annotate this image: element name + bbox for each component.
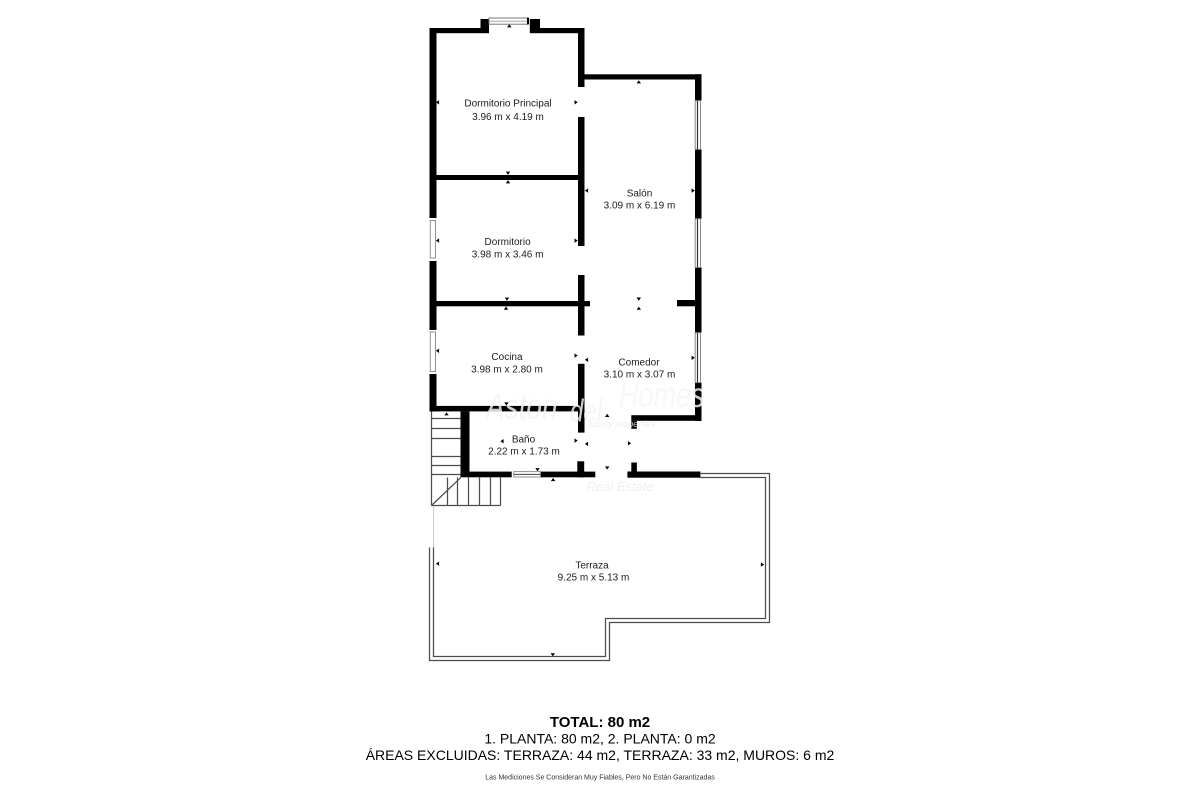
svg-text:Cocina: Cocina (491, 352, 523, 363)
svg-text:Dormitorio Principal: Dormitorio Principal (464, 99, 551, 110)
svg-text:Terraza: Terraza (575, 561, 609, 572)
svg-text:Homes: Homes (619, 374, 705, 415)
svg-text:Comedor: Comedor (618, 358, 660, 369)
svg-text:Baño: Baño (512, 435, 536, 446)
svg-text:Aston: Aston (484, 385, 557, 427)
svg-text:3.96 m x 4.19 m: 3.96 m x 4.19 m (472, 112, 544, 123)
svg-text:2.22 m x 1.73 m: 2.22 m x 1.73 m (488, 446, 560, 457)
svg-text:Dormitorio: Dormitorio (485, 237, 532, 248)
svg-text:3.98 m x 2.80 m: 3.98 m x 2.80 m (471, 365, 543, 376)
svg-text:3.09 m x 6.19 m: 3.09 m x 6.19 m (604, 200, 676, 211)
svg-text:ÁREAS EXCLUIDAS: TERRAZA: 44 m: ÁREAS EXCLUIDAS: TERRAZA: 44 m2, TERRAZA… (366, 747, 835, 763)
svg-text:luxury properties: luxury properties (589, 419, 656, 429)
svg-text:TOTAL: 80 m2: TOTAL: 80 m2 (550, 714, 650, 731)
svg-text:Las Mediciones Se Consideran M: Las Mediciones Se Consideran Muy Fiables… (485, 775, 715, 782)
svg-text:1. PLANTA: 80 m2, 2. PLANTA: 0: 1. PLANTA: 80 m2, 2. PLANTA: 0 m2 (484, 731, 716, 747)
svg-text:3.10 m x 3.07 m: 3.10 m x 3.07 m (604, 369, 676, 380)
svg-text:Salón: Salón (627, 188, 653, 199)
svg-text:9.25 m x 5.13 m: 9.25 m x 5.13 m (558, 573, 630, 584)
svg-text:Real Estate: Real Estate (586, 479, 653, 494)
svg-text:3.98 m x 3.46 m: 3.98 m x 3.46 m (472, 249, 544, 260)
